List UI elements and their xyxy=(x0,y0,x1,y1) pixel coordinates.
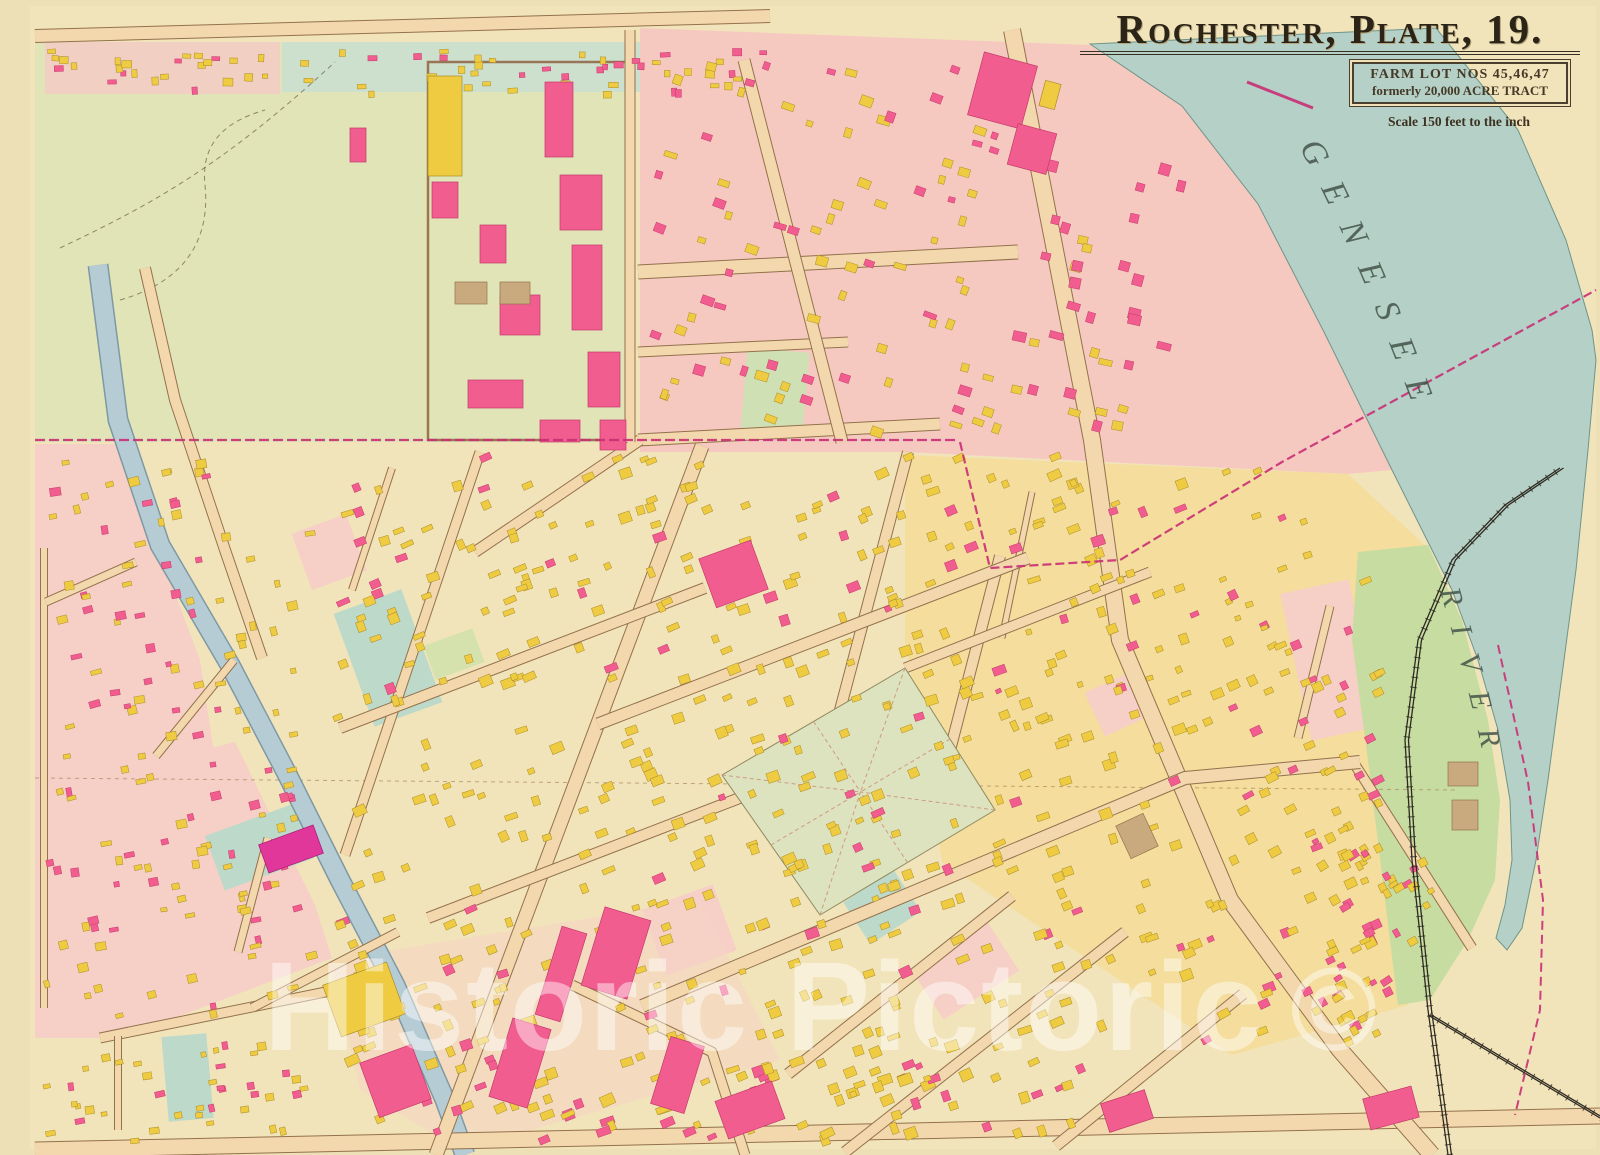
building-major xyxy=(432,182,458,218)
building xyxy=(508,88,518,93)
building xyxy=(263,881,272,891)
building xyxy=(146,773,154,781)
farm-lot-line1: FARM LOT NOS 45,46,47 xyxy=(1359,67,1561,83)
building xyxy=(1124,360,1134,370)
building xyxy=(483,82,491,86)
building-major xyxy=(1448,762,1478,786)
building xyxy=(475,55,481,62)
building xyxy=(251,1091,259,1098)
building xyxy=(196,459,207,469)
building xyxy=(201,1052,207,1058)
building xyxy=(223,78,233,86)
building xyxy=(122,60,132,68)
building xyxy=(247,1082,255,1090)
building xyxy=(664,70,670,77)
building xyxy=(339,50,345,57)
region-inset-green xyxy=(35,42,628,442)
building xyxy=(138,753,146,760)
building xyxy=(172,707,180,713)
building xyxy=(142,1072,152,1080)
building xyxy=(130,1138,139,1144)
building xyxy=(414,53,422,59)
building xyxy=(83,1066,89,1072)
building xyxy=(82,922,91,932)
building xyxy=(94,984,103,993)
building xyxy=(192,860,200,869)
building xyxy=(158,518,165,526)
building xyxy=(160,74,168,80)
building xyxy=(240,1106,249,1113)
building xyxy=(273,709,280,716)
building xyxy=(265,1093,274,1101)
building xyxy=(49,487,61,497)
building xyxy=(1026,629,1033,635)
page-title: Rochester, Plate, 19. xyxy=(1080,8,1580,55)
building xyxy=(204,59,212,65)
scale-caption: Scale 150 feet to the inch xyxy=(1356,114,1562,130)
map-canvas: GENESEERIVER xyxy=(0,0,1600,1155)
building xyxy=(174,1112,182,1119)
building xyxy=(710,84,719,88)
building xyxy=(637,63,644,70)
building xyxy=(133,1061,141,1067)
building xyxy=(282,1070,290,1077)
building xyxy=(149,1127,159,1135)
building xyxy=(684,68,691,75)
building xyxy=(1111,420,1123,431)
building xyxy=(733,48,742,55)
building xyxy=(652,60,660,64)
building xyxy=(144,678,153,685)
building xyxy=(660,52,670,57)
building xyxy=(214,707,221,713)
farm-lot-box: FARM LOT NOS 45,46,47 formerly 20,000 AC… xyxy=(1352,62,1568,104)
building-major xyxy=(468,380,523,408)
building xyxy=(265,767,273,773)
building xyxy=(194,53,203,59)
building xyxy=(70,868,79,877)
building xyxy=(196,1105,204,1112)
building xyxy=(171,510,182,520)
building xyxy=(210,762,216,768)
building xyxy=(249,621,256,630)
building xyxy=(54,66,63,72)
building xyxy=(210,1003,216,1010)
building xyxy=(134,695,145,704)
building xyxy=(71,1101,77,1107)
building xyxy=(262,74,268,79)
building xyxy=(464,85,472,91)
building xyxy=(931,237,938,244)
building xyxy=(101,1112,107,1117)
building xyxy=(108,80,117,84)
building xyxy=(46,859,54,867)
building xyxy=(1029,338,1040,347)
building xyxy=(166,731,178,741)
building xyxy=(1077,235,1088,245)
building xyxy=(152,77,159,85)
building xyxy=(161,907,168,912)
building xyxy=(292,1090,302,1099)
building xyxy=(64,581,74,591)
building xyxy=(115,856,123,865)
building xyxy=(609,82,619,88)
building xyxy=(277,823,286,833)
region-curtis-sub xyxy=(161,1033,213,1122)
building xyxy=(85,1106,95,1115)
building xyxy=(101,525,108,534)
building xyxy=(195,557,202,563)
building xyxy=(440,49,449,54)
building-major xyxy=(540,420,580,442)
building xyxy=(562,73,569,80)
building xyxy=(1082,243,1093,253)
building xyxy=(114,881,120,887)
building xyxy=(187,973,198,983)
building-major xyxy=(455,282,487,304)
building xyxy=(729,70,735,77)
building xyxy=(124,703,131,709)
building xyxy=(110,689,120,696)
building xyxy=(733,77,741,81)
building xyxy=(171,883,179,890)
building xyxy=(250,1051,258,1056)
building-major xyxy=(428,76,462,176)
building xyxy=(84,992,91,999)
building-major xyxy=(350,128,366,162)
building xyxy=(68,1082,74,1091)
building xyxy=(471,71,479,77)
building xyxy=(519,72,525,77)
building xyxy=(960,363,969,373)
building xyxy=(71,63,77,70)
building xyxy=(369,91,375,98)
building xyxy=(132,69,138,77)
building xyxy=(62,460,70,465)
building xyxy=(458,66,465,73)
building xyxy=(95,942,107,951)
building xyxy=(1069,277,1082,289)
building xyxy=(52,55,59,61)
building xyxy=(304,78,313,83)
building xyxy=(675,89,681,97)
building xyxy=(58,940,68,950)
building xyxy=(243,727,250,734)
building xyxy=(175,59,182,63)
building xyxy=(48,49,56,54)
building xyxy=(212,56,220,60)
building xyxy=(1051,215,1061,225)
building xyxy=(161,561,171,569)
building xyxy=(144,864,152,873)
building xyxy=(183,54,191,59)
building xyxy=(228,850,235,859)
building xyxy=(244,73,252,81)
building xyxy=(290,815,298,822)
building xyxy=(221,533,231,542)
building xyxy=(725,82,733,90)
building-major xyxy=(1452,800,1478,830)
building xyxy=(121,766,129,774)
building xyxy=(725,269,734,277)
building-major xyxy=(572,245,602,330)
building xyxy=(101,1054,111,1062)
building xyxy=(217,1085,225,1091)
building xyxy=(213,1047,219,1053)
building xyxy=(760,51,767,55)
building xyxy=(600,57,606,64)
building xyxy=(292,1075,301,1083)
building xyxy=(165,661,171,667)
building xyxy=(192,87,198,95)
building xyxy=(542,67,551,72)
building xyxy=(115,58,120,65)
building-major xyxy=(545,82,573,157)
building xyxy=(579,52,585,58)
building xyxy=(222,1041,229,1049)
building-major xyxy=(500,282,530,304)
building xyxy=(59,56,68,63)
building-major xyxy=(600,420,626,450)
building xyxy=(357,84,366,89)
building-major xyxy=(480,225,506,263)
region-top-lots-pink xyxy=(45,42,280,94)
building xyxy=(1129,213,1139,223)
building xyxy=(81,492,89,500)
building xyxy=(290,668,296,674)
building xyxy=(602,64,607,70)
building xyxy=(236,633,247,642)
building xyxy=(63,754,71,760)
building xyxy=(489,58,496,62)
building xyxy=(300,60,308,66)
building xyxy=(145,643,155,653)
building xyxy=(258,54,264,62)
building xyxy=(195,1112,203,1118)
building xyxy=(171,589,181,599)
building xyxy=(187,813,194,821)
building xyxy=(368,56,377,61)
building xyxy=(206,1121,214,1126)
building xyxy=(440,55,448,61)
farm-lot-line2: formerly 20,000 ACRE TRACT xyxy=(1359,83,1561,99)
building xyxy=(274,580,280,588)
building xyxy=(257,1042,267,1051)
building xyxy=(148,877,159,886)
building xyxy=(176,819,188,829)
building xyxy=(1071,260,1083,272)
building xyxy=(259,812,265,817)
building-major xyxy=(560,175,602,230)
building xyxy=(115,611,127,621)
building xyxy=(230,58,237,64)
building xyxy=(614,62,623,68)
building xyxy=(603,91,611,98)
building xyxy=(53,866,62,875)
building xyxy=(196,846,208,856)
building-major xyxy=(588,352,620,407)
atlas-page: GENESEERIVER Rochester, Plate, 19. FARM … xyxy=(0,0,1600,1155)
